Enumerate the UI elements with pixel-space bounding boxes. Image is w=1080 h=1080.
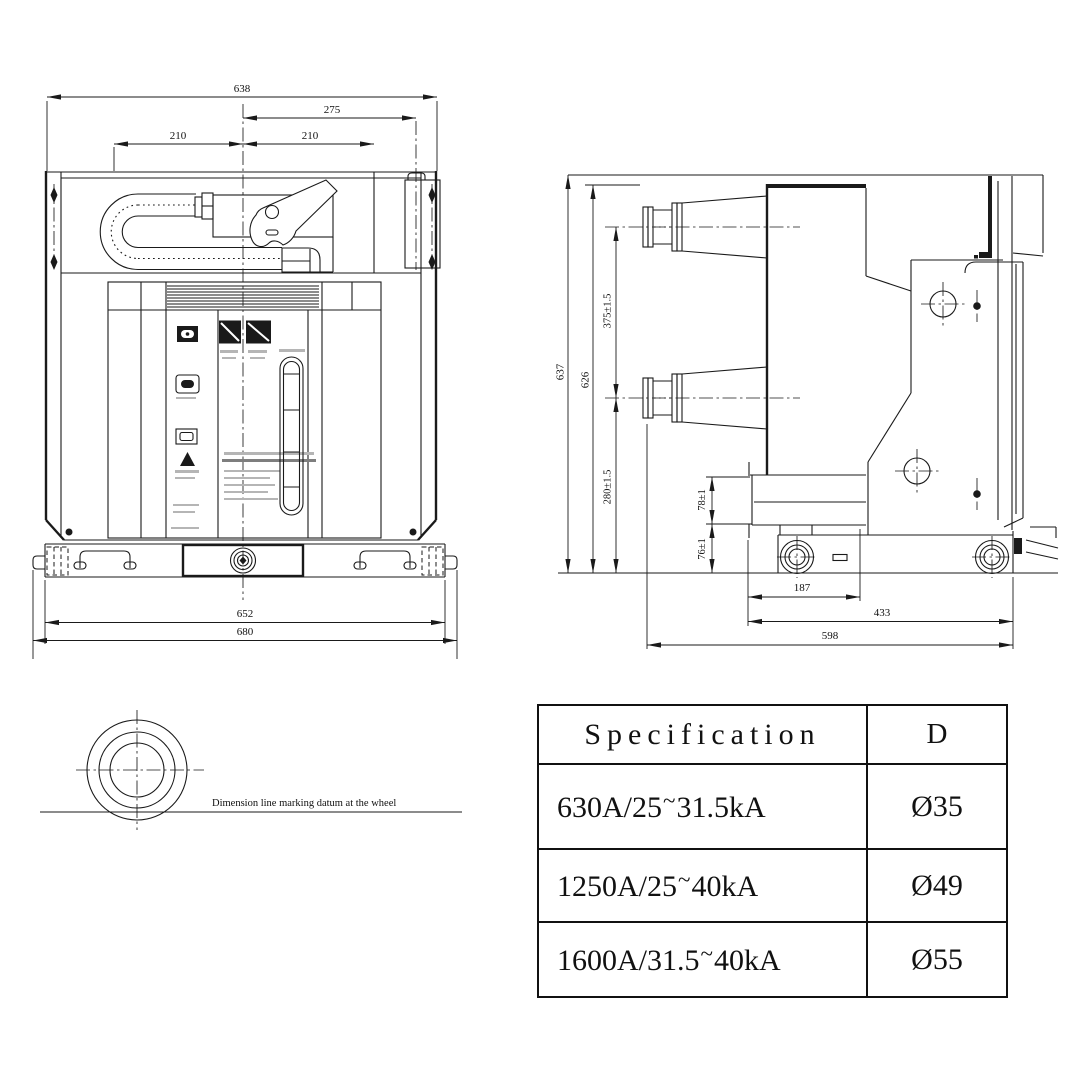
d-value-cell: Ø35 <box>867 764 1007 849</box>
side-truck <box>777 527 1058 578</box>
dimension-label: 375±1.5 <box>603 294 614 329</box>
front-panel <box>108 282 381 538</box>
truck-base <box>33 544 457 577</box>
spec-text: 40kA <box>714 944 781 977</box>
interlock-bracket <box>405 173 440 268</box>
tilde: ~ <box>678 867 690 893</box>
dimension-label: 433 <box>874 607 891 619</box>
nameplate-text <box>224 452 314 455</box>
spec-text: 1600A/31.5 <box>557 944 700 977</box>
dimension-label: 280±1.5 <box>603 470 614 505</box>
spec-text: 31.5kA <box>676 791 765 824</box>
table-row: 1600A/31.5~40kA Ø55 <box>538 922 1007 997</box>
dimension-label: 626 <box>580 371 592 388</box>
spec-cell: 1600A/31.5~40kA <box>538 922 867 997</box>
charging-lever-assembly <box>213 180 337 247</box>
spec-cell: 630A/25~31.5kA <box>538 764 867 849</box>
wheel-datum-note: Dimension line marking datum at the whee… <box>212 798 396 809</box>
dimension-label: 210 <box>170 130 187 142</box>
front-view: 638 275 210 210 <box>33 83 457 659</box>
table-row: 1250A/25~40kA Ø49 <box>538 849 1007 922</box>
wheel-datum-detail: Dimension line marking datum at the whee… <box>40 710 462 830</box>
dimension-label: 78±1 <box>697 489 708 511</box>
spec-text: 630A/25 <box>557 791 662 824</box>
upper-contact-arm <box>605 196 800 258</box>
left-handle <box>80 551 130 568</box>
frame-plate <box>895 175 1043 530</box>
side-view: 637 626 375±1.5 280±1.5 <box>555 175 1059 649</box>
pole-body <box>767 184 1003 535</box>
dimension-label: 637 <box>555 363 567 380</box>
table-row: 630A/25~31.5kA Ø35 <box>538 764 1007 849</box>
dimension-label: 210 <box>302 130 319 142</box>
d-value-cell: Ø49 <box>867 849 1007 922</box>
table-header-row: Specification D <box>538 705 1007 764</box>
right-handle <box>360 551 410 568</box>
specification-table: Specification D 630A/25~31.5kA Ø35 1250A… <box>537 704 1008 998</box>
dimension-label: 680 <box>237 626 254 638</box>
warning-triangle-icon <box>180 452 195 466</box>
latch-arm <box>1026 540 1058 548</box>
lower-contact-arm <box>605 367 800 429</box>
dimension-label: 652 <box>237 608 254 620</box>
dimension-label: 275 <box>324 104 341 116</box>
d-value-cell: Ø55 <box>867 922 1007 997</box>
spec-text: 40kA <box>691 870 758 903</box>
header-d: D <box>867 705 1007 764</box>
spec-text: 1250A/25 <box>557 870 677 903</box>
dimension-label: 638 <box>234 83 251 95</box>
manual-close-slot <box>176 429 197 444</box>
tilde: ~ <box>701 941 713 967</box>
vacuum-circuit-breaker-drawing: 638 275 210 210 <box>0 0 1080 1080</box>
dimension-label: 187 <box>794 582 811 594</box>
spec-cell: 1250A/25~40kA <box>538 849 867 922</box>
dimension-label: 76±1 <box>697 538 708 560</box>
header-specification: Specification <box>538 705 867 764</box>
tilde: ~ <box>663 788 675 814</box>
dimension-label: 598 <box>822 630 839 642</box>
